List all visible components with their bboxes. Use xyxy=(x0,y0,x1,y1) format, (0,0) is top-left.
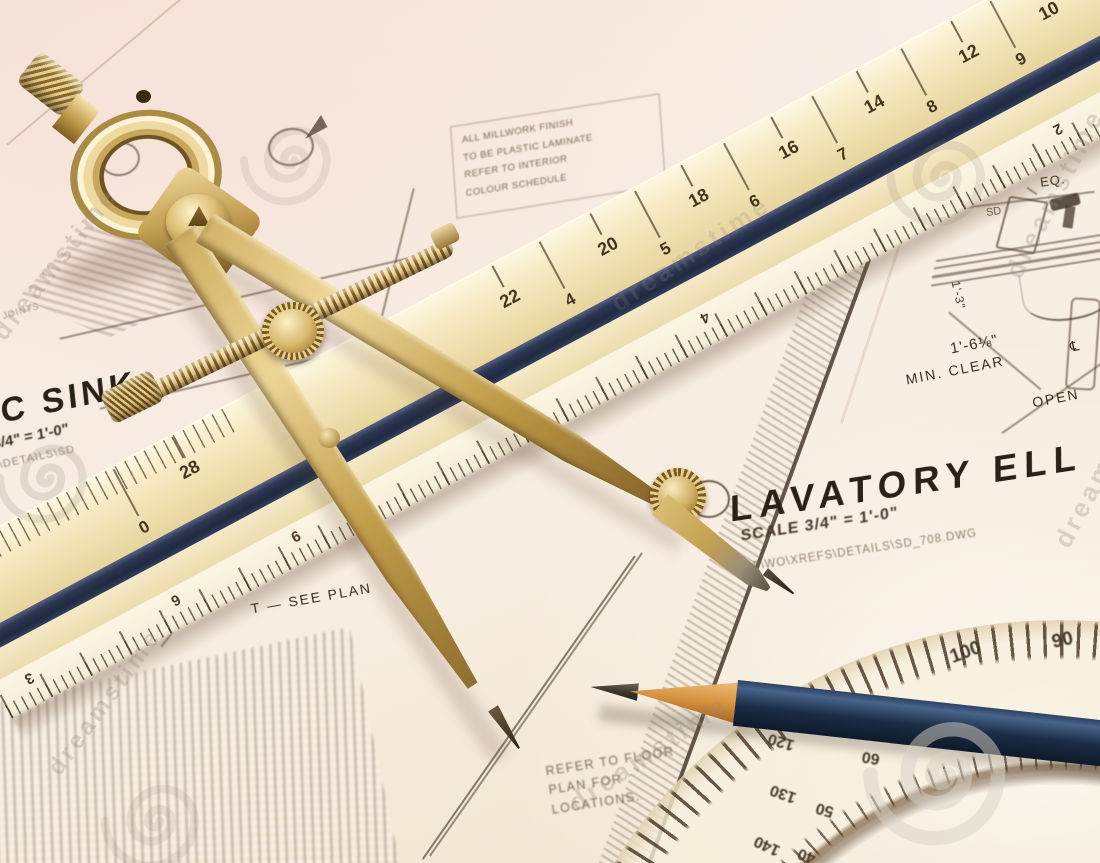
detail-ring xyxy=(688,480,730,518)
ruler-number: 4 xyxy=(562,289,580,311)
detail-callout-bubble xyxy=(97,138,143,180)
watermark-spiral-icon xyxy=(878,112,1008,242)
protractor-number: 90 xyxy=(1050,628,1075,654)
ruler-number: 0 xyxy=(136,517,154,539)
sheet-edge xyxy=(6,0,183,146)
ruler-number: 18 xyxy=(685,184,713,212)
architect-scale-ruler: 28 22 20 18 16 14 12 10 0 4 5 6 7 8 9 3 … xyxy=(0,0,1100,726)
watermark-spiral-icon xyxy=(0,418,108,538)
ruler-number: 10 xyxy=(1035,0,1063,25)
ruler-number: 12 xyxy=(955,40,983,68)
ruler-number: 9 xyxy=(1012,48,1030,70)
drafting-tools-photo: JOINTS IC SINK 3/4" = 1'-0" S\DETAILS\SD… xyxy=(0,0,1100,863)
watermark-spiral-icon xyxy=(232,100,352,220)
compass-ring-hole xyxy=(136,90,151,103)
compass-pivot-spike xyxy=(188,206,210,226)
ruler-number: 16 xyxy=(775,136,803,164)
compass-thumb-disc xyxy=(262,302,324,360)
compass-thumb-disc-center xyxy=(269,309,317,353)
watermark-spiral-icon xyxy=(852,682,1037,863)
watermark-spiral-icon xyxy=(92,756,222,863)
ruler-number: 20 xyxy=(594,233,622,261)
ruler-number: 7 xyxy=(834,144,852,166)
pencil-graphite-tip xyxy=(589,676,639,703)
min-clear-text: MIN. CLEAR xyxy=(904,353,1005,388)
height-dim-text: 1'-3" xyxy=(949,279,969,310)
compass-rod-end-cap xyxy=(429,221,461,250)
ruler-number: 22 xyxy=(496,285,524,313)
compass-needle-right xyxy=(762,568,796,597)
open-text: OPEN xyxy=(1031,386,1081,411)
compass-pivot-disc xyxy=(166,194,230,250)
